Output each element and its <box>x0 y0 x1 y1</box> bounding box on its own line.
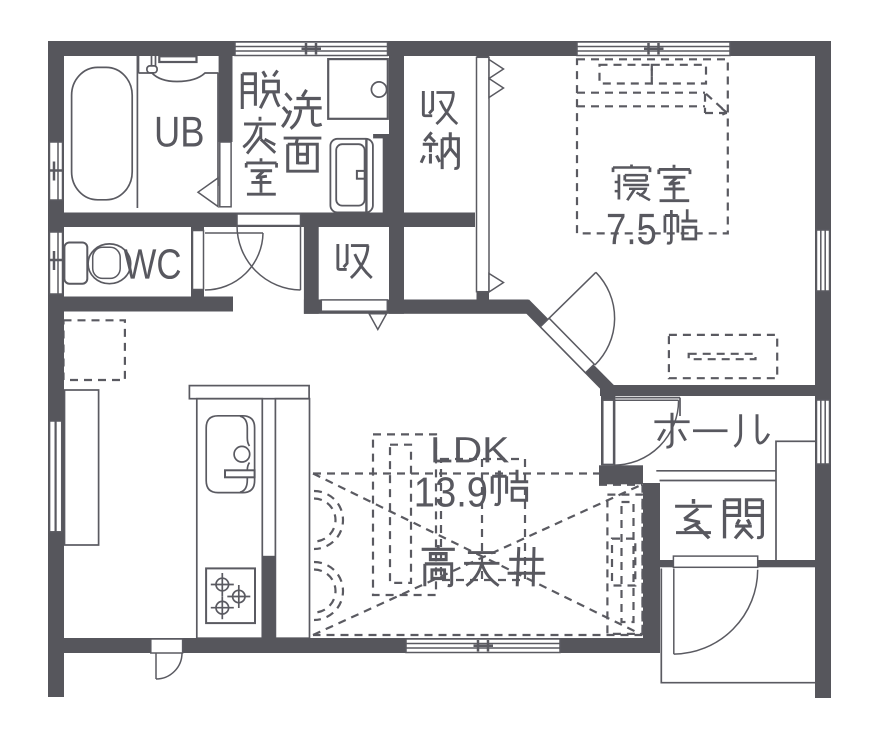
svg-text:WC: WC <box>123 242 181 289</box>
svg-text:UB: UB <box>154 109 205 157</box>
svg-text:7.5: 7.5 <box>606 205 657 254</box>
svg-text:LDK: LDK <box>430 429 509 470</box>
svg-text:13.9: 13.9 <box>414 469 488 516</box>
